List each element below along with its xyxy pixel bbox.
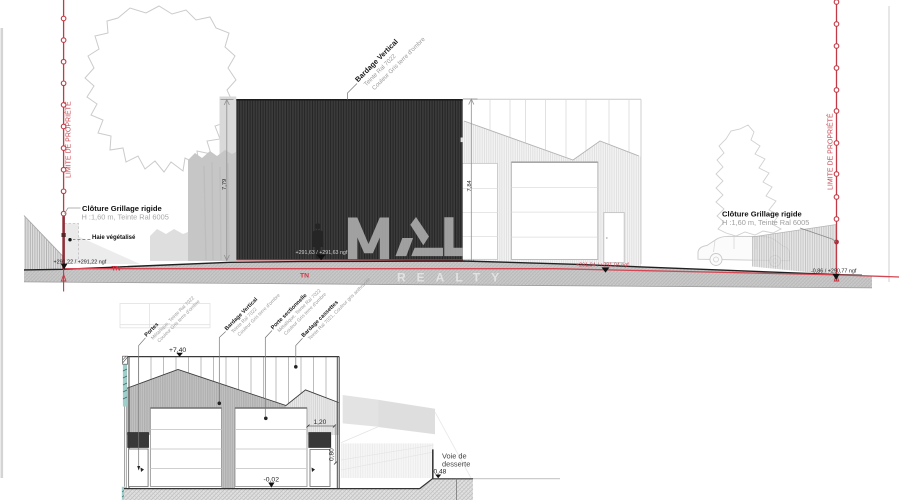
svg-text:7,84: 7,84 [467,179,473,191]
svg-text:desserte: desserte [442,460,470,469]
svg-text:LIMITE DE PROPRIÉTÉ: LIMITE DE PROPRIÉTÉ [826,113,835,190]
svg-text:Clôture Grillage rigide: Clôture Grillage rigide [722,209,802,218]
svg-text:REALTY: REALTY [397,271,510,285]
svg-text:1,20: 1,20 [314,419,327,426]
svg-text:H :1,60 m, Teinte Ral 6005: H :1,60 m, Teinte Ral 6005 [722,218,809,227]
svg-text:Haie végétalisé: Haie végétalisé [92,235,136,241]
svg-text:7,79: 7,79 [222,179,228,190]
svg-text:Clôture Grillage rigide: Clôture Grillage rigide [82,204,162,213]
svg-text:-0,02: -0,02 [264,476,280,483]
svg-text:-0,86 / +290,77 ngf: -0,86 / +290,77 ngf [811,269,857,275]
svg-text:TN: TN [112,265,121,272]
svg-text:TN: TN [300,273,309,280]
svg-text:LIMITE DE PROPRIÉTÉ: LIMITE DE PROPRIÉTÉ [64,101,73,178]
svg-text:0,48: 0,48 [434,468,447,475]
svg-text:0,80: 0,80 [329,448,336,461]
svg-text:H :1,60 m, Teinte Ral 6005: H :1,60 m, Teinte Ral 6005 [82,213,169,222]
